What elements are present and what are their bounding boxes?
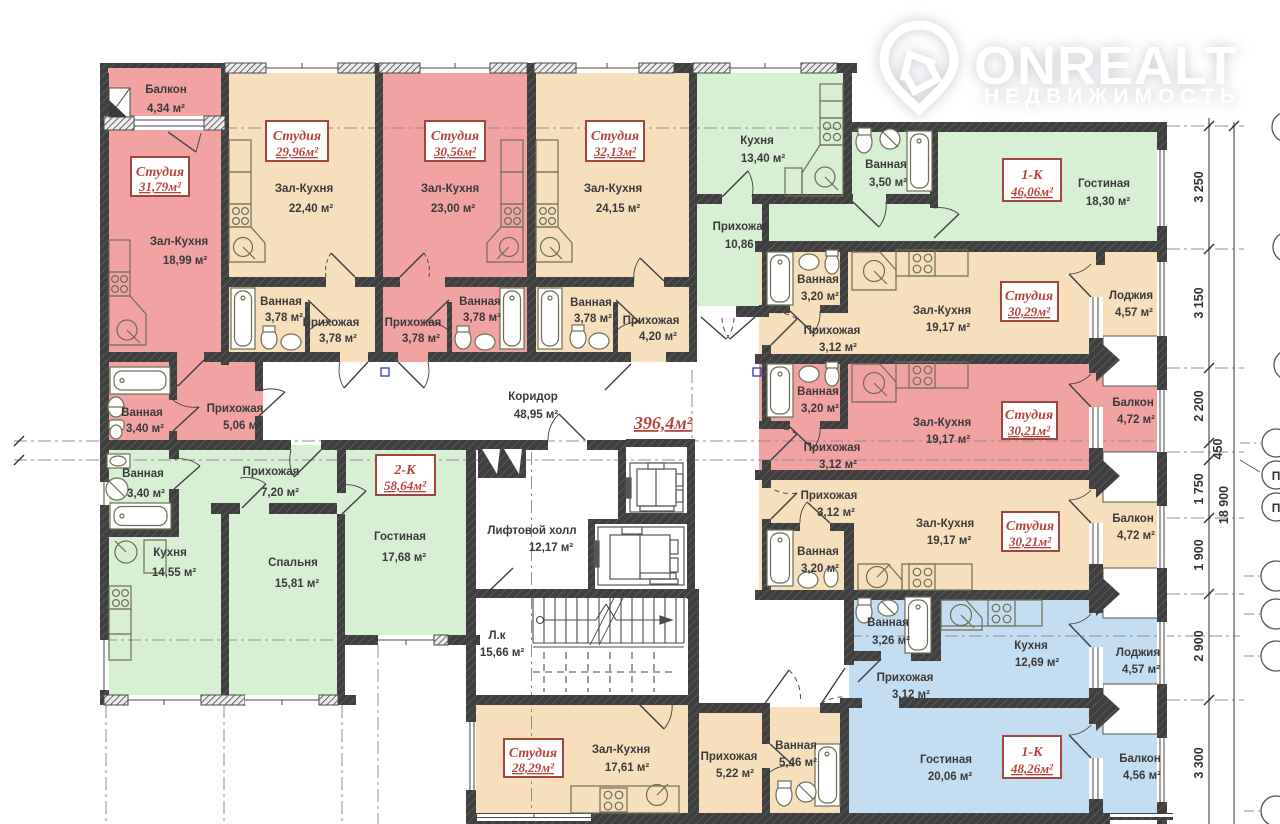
- svg-text:48,26м²: 48,26м²: [1010, 761, 1054, 776]
- svg-text:Прихожая: Прихожая: [804, 442, 861, 454]
- svg-text:30,56м²: 30,56м²: [433, 144, 477, 159]
- svg-text:12,17 м²: 12,17 м²: [529, 542, 573, 554]
- svg-text:3,26 м²: 3,26 м²: [872, 635, 910, 647]
- svg-text:Студия: Студия: [1005, 408, 1053, 423]
- svg-text:30,21м²: 30,21м²: [1008, 534, 1052, 549]
- svg-text:П: П: [1272, 469, 1280, 483]
- svg-text:Ванная: Ванная: [459, 296, 501, 308]
- svg-text:Зал-Кухня: Зал-Кухня: [584, 183, 642, 195]
- svg-text:17,68 м²: 17,68 м²: [382, 552, 426, 564]
- svg-text:Спальня: Спальня: [268, 557, 318, 569]
- svg-text:3,20 м²: 3,20 м²: [801, 291, 839, 303]
- svg-text:3 150: 3 150: [1192, 287, 1206, 318]
- svg-text:2-К: 2-К: [393, 463, 417, 478]
- svg-text:Студия: Студия: [136, 165, 184, 180]
- svg-text:Ванная: Ванная: [867, 617, 909, 629]
- svg-text:Зал-Кухня: Зал-Кухня: [913, 417, 971, 429]
- svg-text:3,78 м²: 3,78 м²: [265, 312, 303, 324]
- svg-text:Балкон: Балкон: [1112, 397, 1154, 409]
- svg-text:3,40 м²: 3,40 м²: [126, 423, 164, 435]
- svg-text:Зал-Кухня: Зал-Кухня: [913, 305, 971, 317]
- svg-text:22,40 м²: 22,40 м²: [289, 203, 333, 215]
- svg-text:48,95 м²: 48,95 м²: [514, 409, 558, 421]
- svg-text:Ванная: Ванная: [260, 296, 302, 308]
- svg-text:3,40 м²: 3,40 м²: [127, 488, 165, 500]
- svg-text:3,78 м²: 3,78 м²: [402, 333, 440, 345]
- svg-text:3,78 м²: 3,78 м²: [574, 313, 612, 325]
- svg-text:Студия: Студия: [1006, 519, 1054, 534]
- svg-text:Гостиная: Гостиная: [920, 754, 972, 766]
- svg-text:19,17 м²: 19,17 м²: [927, 535, 971, 547]
- svg-text:Зал-Кухня: Зал-Кухня: [421, 183, 479, 195]
- svg-text:Зал-Кухня: Зал-Кухня: [150, 236, 208, 248]
- svg-text:4,57 м²: 4,57 м²: [1122, 664, 1160, 676]
- svg-text:Студия: Студия: [591, 129, 639, 144]
- svg-text:31,79м²: 31,79м²: [138, 179, 182, 194]
- svg-text:Лоджия: Лоджия: [1116, 647, 1160, 659]
- svg-text:29,96м²: 29,96м²: [275, 144, 319, 159]
- svg-text:3,20 м²: 3,20 м²: [801, 403, 839, 415]
- svg-text:24,15 м²: 24,15 м²: [596, 203, 640, 215]
- svg-text:4,57 м²: 4,57 м²: [1115, 307, 1153, 319]
- svg-text:23,00 м²: 23,00 м²: [431, 203, 475, 215]
- svg-text:Гостиная: Гостиная: [374, 531, 426, 543]
- svg-text:2 900: 2 900: [1192, 630, 1206, 661]
- svg-text:Л.к: Л.к: [488, 630, 505, 642]
- svg-text:Студия: Студия: [1005, 289, 1053, 304]
- svg-text:1 750: 1 750: [1192, 473, 1206, 504]
- svg-text:Прихожая: Прихожая: [303, 317, 360, 329]
- svg-text:Зал-Кухня: Зал-Кухня: [592, 744, 650, 756]
- svg-text:10,86 м²: 10,86 м²: [725, 239, 769, 251]
- svg-text:П: П: [1272, 501, 1280, 515]
- svg-text:13,40 м²: 13,40 м²: [741, 153, 785, 165]
- svg-text:3,12 м²: 3,12 м²: [892, 689, 930, 701]
- svg-text:19,17 м²: 19,17 м²: [926, 322, 970, 334]
- svg-text:Прихожая: Прихожая: [801, 490, 858, 502]
- svg-text:18,99 м²: 18,99 м²: [163, 255, 207, 267]
- svg-text:4,72 м²: 4,72 м²: [1117, 414, 1155, 426]
- svg-text:Коридор: Коридор: [508, 391, 558, 403]
- svg-text:Ванная: Ванная: [121, 407, 163, 419]
- svg-text:Балкон: Балкон: [1112, 513, 1154, 525]
- svg-text:14,55 м²: 14,55 м²: [152, 567, 196, 579]
- svg-text:Ванная: Ванная: [570, 297, 612, 309]
- svg-text:4,56 м²: 4,56 м²: [1123, 770, 1161, 782]
- svg-text:Студия: Студия: [273, 129, 321, 144]
- svg-text:3,78 м²: 3,78 м²: [319, 333, 357, 345]
- svg-text:Ванная: Ванная: [797, 386, 839, 398]
- svg-text:4,20 м²: 4,20 м²: [639, 331, 677, 343]
- svg-text:Зал-Кухня: Зал-Кухня: [275, 183, 333, 195]
- svg-text:1-К: 1-К: [1021, 745, 1044, 760]
- svg-text:3,12 м²: 3,12 м²: [819, 459, 857, 471]
- svg-text:5,06 м²: 5,06 м²: [223, 420, 261, 432]
- svg-text:18 900: 18 900: [1217, 486, 1231, 524]
- svg-text:1-К: 1-К: [1021, 168, 1044, 183]
- svg-text:Кухня: Кухня: [1014, 640, 1048, 652]
- svg-text:5,46 м²: 5,46 м²: [779, 757, 817, 769]
- svg-text:Балкон: Балкон: [145, 84, 187, 96]
- svg-text:Лоджия: Лоджия: [1109, 290, 1153, 302]
- svg-text:Ванная: Ванная: [122, 468, 164, 480]
- svg-text:Прихожая: Прихожая: [804, 325, 861, 337]
- svg-text:Прихожая: Прихожая: [877, 672, 934, 684]
- svg-text:20,06 м²: 20,06 м²: [928, 771, 972, 783]
- svg-text:Балкон: Балкон: [1119, 753, 1161, 765]
- svg-text:Прихожая: Прихожая: [207, 403, 264, 415]
- svg-text:30,21м²: 30,21м²: [1007, 423, 1051, 438]
- svg-text:17,61 м²: 17,61 м²: [605, 762, 649, 774]
- svg-text:Прихожая: Прихожая: [701, 751, 758, 763]
- svg-text:Ванная: Ванная: [797, 274, 839, 286]
- svg-text:3,12 м²: 3,12 м²: [819, 342, 857, 354]
- svg-text:Ванная: Ванная: [775, 740, 817, 752]
- svg-text:1 900: 1 900: [1192, 539, 1206, 570]
- svg-text:Кухня: Кухня: [153, 547, 187, 559]
- svg-text:7,20 м²: 7,20 м²: [261, 487, 299, 499]
- svg-text:Студия: Студия: [509, 746, 557, 761]
- svg-text:46,06м²: 46,06м²: [1010, 184, 1054, 199]
- svg-text:Прихожая: Прихожая: [385, 317, 442, 329]
- svg-text:Лифтовой холл: Лифтовой холл: [487, 525, 576, 537]
- svg-text:5,22 м²: 5,22 м²: [716, 768, 754, 780]
- svg-text:2 200: 2 200: [1192, 390, 1206, 421]
- svg-text:19,17 м²: 19,17 м²: [926, 434, 970, 446]
- svg-text:18,30 м²: 18,30 м²: [1086, 196, 1130, 208]
- svg-text:Гостиная: Гостиная: [1078, 178, 1130, 190]
- svg-text:Прихожая: Прихожая: [243, 466, 300, 478]
- svg-text:4,34 м²: 4,34 м²: [147, 103, 185, 115]
- svg-text:4,72 м²: 4,72 м²: [1117, 530, 1155, 542]
- svg-text:450: 450: [1211, 439, 1225, 460]
- svg-text:58,64м²: 58,64м²: [384, 478, 427, 493]
- svg-text:Ванная: Ванная: [865, 159, 907, 171]
- svg-text:15,81 м²: 15,81 м²: [275, 578, 319, 590]
- svg-text:3,12 м²: 3,12 м²: [817, 507, 855, 519]
- svg-text:Студия: Студия: [431, 129, 479, 144]
- svg-text:3 250: 3 250: [1192, 171, 1206, 202]
- svg-text:30,29м²: 30,29м²: [1007, 304, 1051, 319]
- svg-text:3,78 м²: 3,78 м²: [463, 312, 501, 324]
- svg-text:Прихожая: Прихожая: [623, 315, 680, 327]
- svg-text:Прихожая: Прихожая: [713, 221, 770, 233]
- svg-text:3,50 м²: 3,50 м²: [869, 177, 907, 189]
- svg-text:Кухня: Кухня: [740, 135, 774, 147]
- svg-text:3,20 м²: 3,20 м²: [801, 563, 839, 575]
- svg-text:НЕДВИЖИМОСТЬ: НЕДВИЖИМОСТЬ: [984, 85, 1241, 108]
- svg-text:15,66 м²: 15,66 м²: [480, 647, 524, 659]
- svg-text:3 300: 3 300: [1192, 747, 1206, 778]
- svg-text:32,13м²: 32,13м²: [593, 144, 637, 159]
- svg-text:Ванная: Ванная: [797, 546, 839, 558]
- svg-text:396,4м²: 396,4м²: [633, 413, 693, 433]
- svg-text:12,69 м²: 12,69 м²: [1015, 657, 1059, 669]
- svg-text:28,29м²: 28,29м²: [511, 760, 555, 775]
- svg-text:Зал-Кухня: Зал-Кухня: [916, 518, 974, 530]
